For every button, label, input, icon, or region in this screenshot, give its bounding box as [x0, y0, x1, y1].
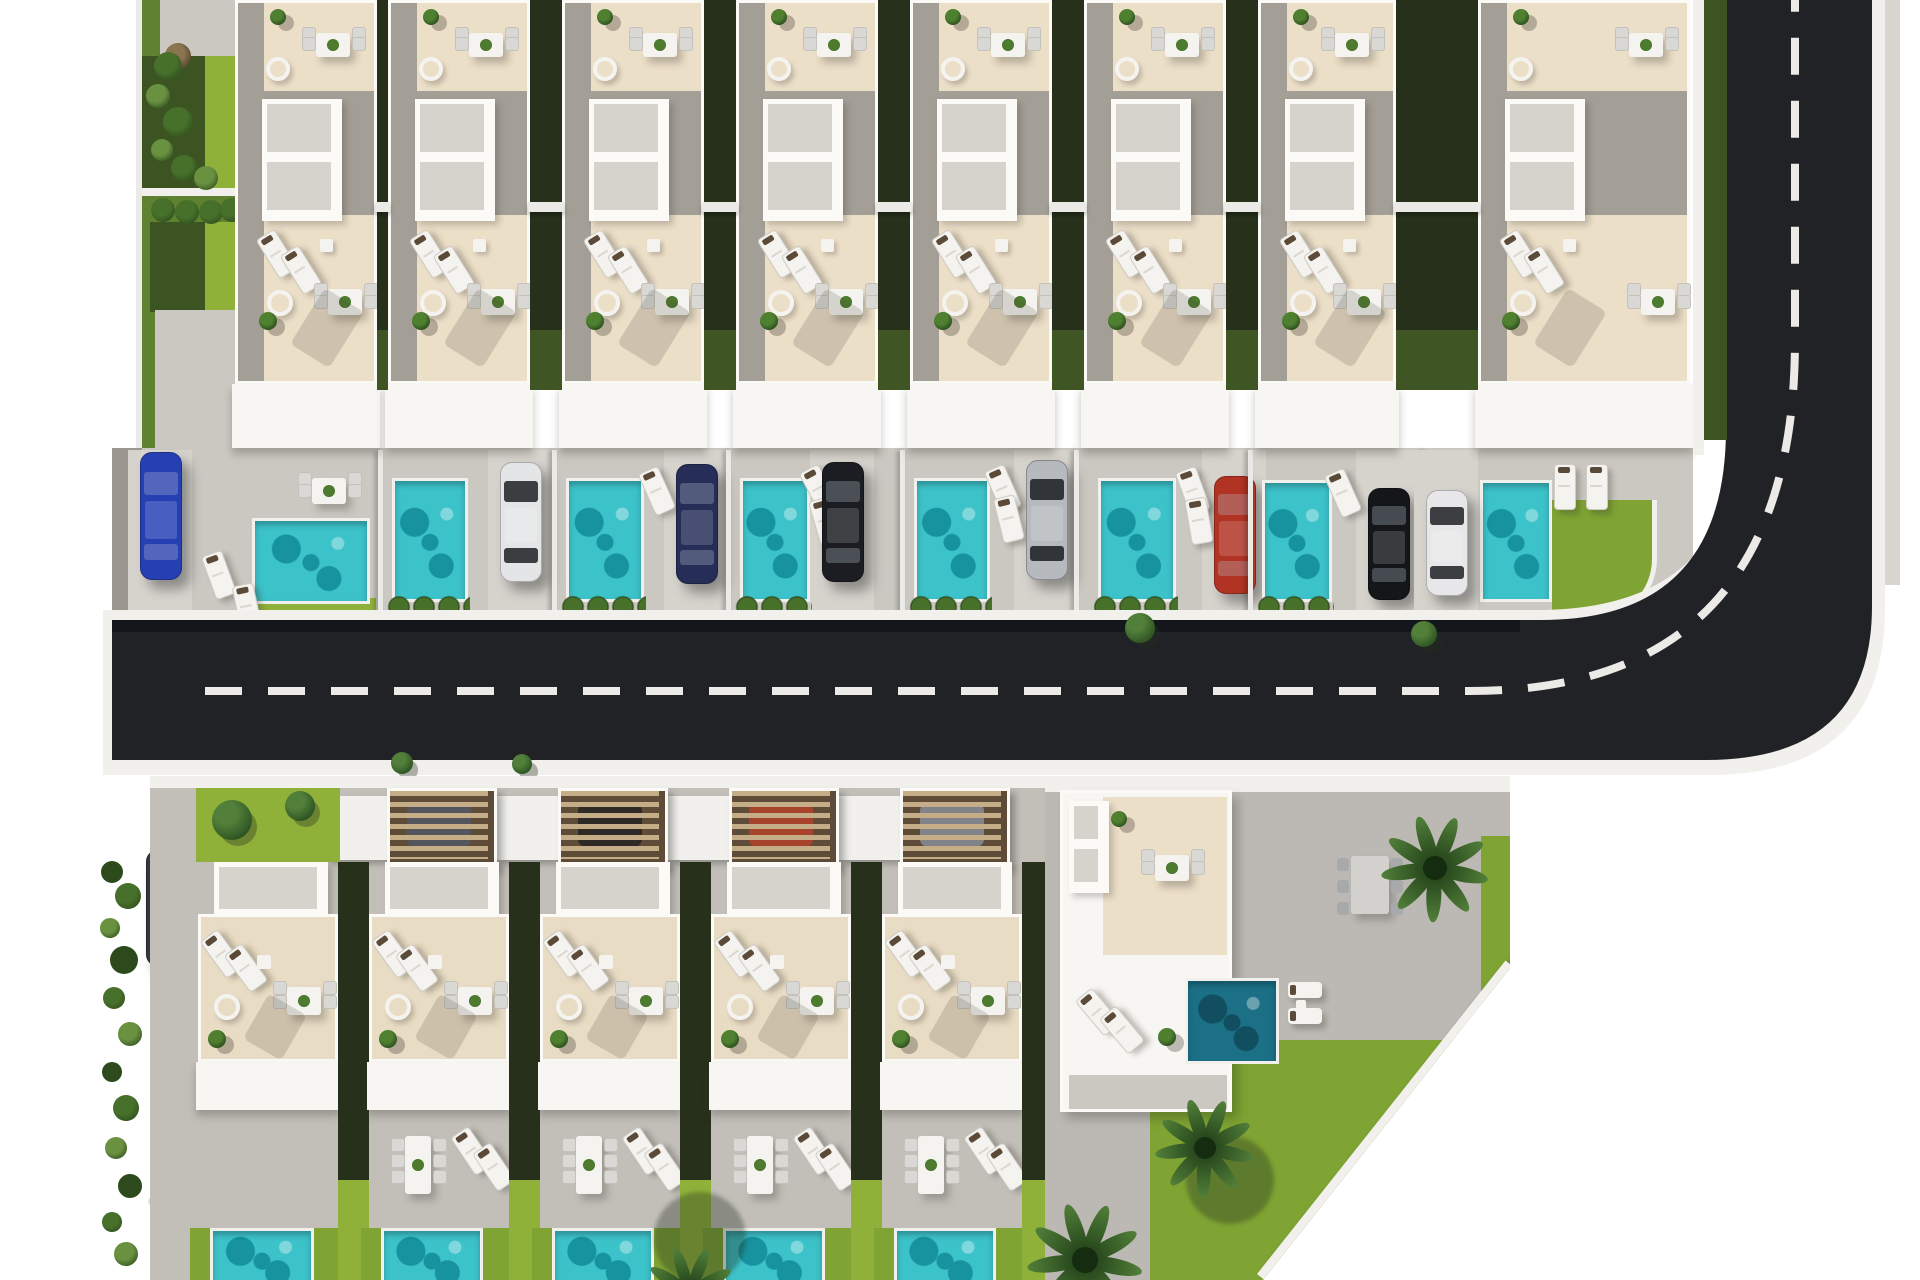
lounger-line — [829, 1162, 840, 1170]
lounger-headrest — [959, 250, 972, 261]
dining-set — [1151, 19, 1213, 71]
lot-gap-hedge — [680, 862, 711, 1180]
dining-chair — [1627, 295, 1641, 309]
table-plant-icon — [1166, 862, 1178, 874]
dining-set — [977, 19, 1039, 71]
villa-facade — [880, 1062, 1024, 1110]
dining-chair — [444, 981, 458, 995]
lounger-line — [795, 265, 806, 273]
table-plant-icon — [925, 1159, 937, 1171]
dining-set — [1141, 841, 1203, 895]
lounger-line — [212, 571, 224, 577]
skylight-panel — [768, 162, 832, 210]
dining-chair — [904, 1170, 918, 1184]
potted-plant-icon — [1158, 1028, 1176, 1046]
carport-pergola — [900, 788, 1010, 868]
lounger-line — [752, 963, 763, 972]
lounger-headrest — [1080, 993, 1093, 1005]
lounger-headrest — [455, 1132, 468, 1144]
dining-chair — [323, 995, 337, 1009]
table-plant-icon — [412, 1159, 424, 1171]
villa-facade — [733, 384, 881, 448]
lounger-line — [771, 249, 782, 257]
round-chair — [941, 57, 965, 81]
dining-table — [1155, 855, 1189, 881]
table-plant-icon — [982, 995, 994, 1007]
garden-block — [142, 188, 235, 196]
lounger-line — [969, 265, 980, 273]
dining-set — [629, 19, 691, 71]
lounger-headrest — [437, 250, 450, 261]
dining-chair — [1677, 295, 1691, 309]
round-chair — [1115, 57, 1139, 81]
lounger-line — [621, 265, 632, 273]
outdoor-chair — [1337, 858, 1349, 871]
skylight-panel — [942, 162, 1006, 210]
lounger-headrest — [626, 1132, 639, 1144]
side-table — [1169, 239, 1182, 252]
skylight-panel — [219, 867, 317, 909]
potted-plant-icon — [1502, 312, 1520, 330]
skylight-panel — [420, 162, 484, 210]
skylight-frame — [1505, 99, 1585, 221]
dining-chair — [562, 1170, 576, 1184]
dining-table — [1165, 33, 1199, 57]
bush-icon — [163, 107, 193, 137]
dining-chair — [733, 1138, 747, 1152]
round-chair — [266, 57, 290, 81]
pergola-slats — [561, 791, 659, 859]
connector-beam — [1224, 202, 1260, 212]
pool — [1185, 978, 1279, 1064]
top-villa-roof — [1258, 0, 1396, 384]
entry-block — [668, 796, 738, 860]
hedge-row — [908, 594, 992, 620]
dining-chair — [615, 981, 629, 995]
lounger-line — [240, 604, 252, 608]
side-table — [599, 955, 613, 969]
villa-facade — [196, 1062, 340, 1110]
dining-chair — [665, 995, 679, 1009]
villa-gap-hedge — [878, 0, 910, 390]
bottom-sidewalk — [150, 776, 1050, 788]
lounger-line — [996, 485, 1008, 492]
dining-chair — [1615, 37, 1629, 51]
top-villa-roof — [235, 0, 377, 384]
skylight-panel — [561, 867, 659, 909]
lounger-headrest — [642, 471, 655, 481]
side-table — [257, 955, 271, 969]
lounger-headrest — [1590, 467, 1602, 473]
lounger-headrest — [988, 469, 1001, 479]
dining-chair — [946, 1138, 960, 1152]
bush-icon — [114, 1242, 138, 1266]
outdoor-table — [1351, 856, 1389, 914]
dining-chair — [1151, 37, 1165, 51]
lounger-headrest — [1328, 473, 1341, 483]
lounger-line — [1590, 485, 1602, 487]
dining-chair — [1371, 37, 1385, 51]
car-windshield — [1218, 494, 1252, 515]
potted-plant-icon — [892, 1030, 910, 1048]
dining-chair — [1383, 295, 1397, 309]
gap-lawn-accent — [704, 330, 736, 390]
dining-set — [455, 19, 517, 71]
yard-divider-wall — [1248, 450, 1253, 618]
potted-plant-icon — [945, 9, 961, 25]
skylight-frame — [214, 862, 328, 920]
tree-icon — [1411, 621, 1437, 647]
car-rear-window — [1030, 546, 1064, 561]
car-roof — [1219, 521, 1251, 556]
dining-table — [469, 33, 503, 57]
yard-divider-wall — [552, 450, 557, 618]
sun-lounger — [1288, 982, 1322, 998]
top-villa-roof — [910, 0, 1052, 384]
gap-lawn-accent — [530, 330, 562, 390]
side-table — [428, 955, 442, 969]
skylight-panel — [1290, 162, 1354, 210]
table-plant-icon — [298, 995, 310, 1007]
dining-chair — [836, 995, 850, 1009]
lounger-headrest — [1307, 250, 1320, 261]
table-plant-icon — [1002, 39, 1014, 51]
corner-villa-parcel — [1045, 776, 1510, 1280]
lot-gap-hedge — [851, 862, 882, 1180]
car-windshield — [1030, 479, 1064, 500]
lounger-headrest — [1503, 234, 1516, 245]
skylight-panel — [903, 867, 1001, 909]
side-table — [473, 239, 486, 252]
table-plant-icon — [583, 1159, 595, 1171]
dining-table — [991, 33, 1025, 57]
villa-facade — [538, 1062, 682, 1110]
lounger-headrest — [1133, 250, 1146, 261]
lounger-headrest — [587, 234, 600, 245]
pool — [914, 478, 990, 602]
dining-chair — [302, 37, 316, 51]
dining-set — [298, 464, 360, 518]
car-rear-window — [680, 550, 714, 565]
dining-chair — [433, 1170, 447, 1184]
top-villa-roof — [562, 0, 704, 384]
hedge-row — [1256, 594, 1334, 620]
connector-beam — [876, 202, 912, 212]
dining-chair — [733, 1154, 747, 1168]
lounger-line — [1192, 518, 1204, 522]
lounger-line — [447, 265, 458, 273]
dining-chair — [494, 995, 508, 1009]
tree-icon — [285, 791, 315, 821]
lounger-headrest — [206, 554, 219, 564]
lounger-line — [1293, 249, 1304, 257]
villa-facade — [385, 384, 533, 448]
gap-lawn-accent — [377, 330, 388, 390]
pool — [1098, 478, 1176, 602]
bush-icon — [101, 861, 123, 883]
carport-pergola — [387, 788, 497, 868]
lounger-line — [423, 249, 434, 257]
lounger-headrest — [400, 949, 413, 961]
lounger-headrest — [571, 949, 584, 961]
top-villa-roof — [1084, 0, 1226, 384]
skylight-panel — [1510, 162, 1574, 210]
side-table — [770, 955, 784, 969]
side-table — [1343, 239, 1356, 252]
dining-set — [562, 1122, 616, 1208]
car-262e58 — [676, 464, 718, 584]
lounger-headrest — [1527, 250, 1540, 261]
top-villa-roof — [736, 0, 878, 384]
cast-shadow — [1533, 288, 1607, 368]
lounger-headrest — [1109, 234, 1122, 245]
lounger-line — [1115, 1025, 1125, 1034]
gap-lawn-accent — [878, 330, 910, 390]
potted-plant-icon — [270, 9, 286, 25]
car-rear-window — [1430, 566, 1464, 580]
bottom-villa-roof — [540, 914, 680, 1062]
bush-icon — [151, 198, 175, 222]
lot-gap-hedge — [1022, 862, 1045, 1180]
skylight-frame — [898, 862, 1012, 920]
car-windshield — [144, 472, 178, 495]
bottom-villa-roof — [882, 914, 1022, 1062]
side-table — [821, 239, 834, 252]
lounger-line — [1091, 1007, 1101, 1016]
sun-lounger — [1288, 1008, 1322, 1024]
dining-table — [576, 1136, 602, 1194]
pergola-slats — [390, 791, 488, 859]
dining-chair — [1321, 37, 1335, 51]
lounger-headrest — [260, 234, 273, 245]
bush-icon — [102, 1212, 122, 1232]
dining-chair — [853, 37, 867, 51]
lounger-line — [294, 265, 305, 273]
skylight-panel — [732, 867, 830, 909]
potted-plant-icon — [1513, 9, 1529, 25]
dining-chair — [946, 1170, 960, 1184]
lot-gap-hedge — [338, 862, 369, 1180]
dining-chair — [348, 484, 362, 498]
dining-table — [1335, 33, 1369, 57]
lounger-headrest — [990, 1148, 1003, 1160]
dining-chair — [562, 1138, 576, 1152]
entry-block — [497, 796, 567, 860]
dining-chair — [1665, 37, 1679, 51]
villa-facade — [709, 1062, 853, 1110]
lounger-headrest — [935, 234, 948, 245]
bush-icon — [146, 84, 170, 108]
lounger-line — [1186, 487, 1198, 493]
bush-icon — [194, 166, 218, 190]
lounger-headrest — [718, 935, 731, 947]
potted-plant-icon — [423, 9, 439, 25]
lounger-line — [270, 249, 281, 257]
potted-plant-icon — [586, 312, 604, 330]
dining-chair — [629, 37, 643, 51]
dining-chair — [775, 1170, 789, 1184]
dining-chair — [364, 295, 378, 309]
round-chair — [593, 57, 617, 81]
skylight-panel — [420, 104, 484, 152]
road-white-wall — [1693, 0, 1704, 455]
dining-chair — [455, 37, 469, 51]
bush-icon — [154, 52, 182, 80]
skylight-frame — [262, 99, 342, 221]
hedge-row — [386, 594, 470, 620]
table-plant-icon — [1652, 296, 1664, 308]
dining-table — [817, 33, 851, 57]
connector-beam — [528, 202, 564, 212]
dining-chair — [1007, 995, 1021, 1009]
round-chair — [1509, 57, 1533, 81]
car-e7e7e9 — [1426, 490, 1468, 596]
dining-table — [1629, 33, 1663, 57]
lounger-line — [410, 963, 421, 972]
garden-block — [150, 222, 208, 312]
yard-divider-wall — [378, 450, 383, 618]
potted-plant-icon — [934, 312, 952, 330]
connector-beam — [702, 202, 738, 212]
table-plant-icon — [1346, 39, 1358, 51]
skylight-frame — [415, 99, 495, 221]
outdoor-dining-set — [1337, 842, 1403, 928]
lounger-line — [1513, 249, 1524, 257]
tree-icon — [1125, 613, 1155, 643]
villa-gap-hedge — [1396, 0, 1478, 390]
skylight-frame — [1111, 99, 1191, 221]
connector-beam — [1050, 202, 1086, 212]
car-roof — [145, 501, 177, 539]
dining-set — [1321, 19, 1383, 71]
bush-icon — [151, 139, 173, 161]
skylight-panel — [1074, 849, 1098, 882]
table-plant-icon — [640, 995, 652, 1007]
table-plant-icon — [828, 39, 840, 51]
dining-chair — [679, 37, 693, 51]
bush-icon — [113, 1095, 139, 1121]
lounger-headrest — [742, 949, 755, 961]
car-windshield — [826, 481, 860, 502]
lounger-line — [1002, 516, 1014, 521]
potted-plant-icon — [597, 9, 613, 25]
pool — [392, 478, 468, 602]
lounger-headrest — [611, 250, 624, 261]
round-chair — [385, 994, 411, 1020]
lounger-headrest — [376, 935, 389, 947]
dining-chair — [1201, 37, 1215, 51]
potted-plant-icon — [771, 9, 787, 25]
bottom-villa-roof — [198, 914, 338, 1062]
outdoor-chair — [1337, 902, 1349, 915]
villa-gap-hedge — [704, 0, 736, 390]
side-table — [995, 239, 1008, 252]
tree-icon — [391, 752, 413, 774]
dining-chair — [786, 981, 800, 995]
dining-chair — [977, 37, 991, 51]
lounger-line — [1336, 489, 1348, 496]
bush-icon — [100, 918, 120, 938]
lounger-headrest — [205, 935, 218, 947]
table-plant-icon — [1640, 39, 1652, 51]
lounger-line — [1143, 265, 1154, 273]
dining-table — [918, 1136, 944, 1194]
carport-pergola — [558, 788, 668, 868]
lounger-headrest — [803, 469, 816, 480]
lounger-headrest — [547, 935, 560, 947]
dining-chair — [391, 1170, 405, 1184]
dining-chair — [904, 1138, 918, 1152]
car-roof — [1373, 531, 1405, 564]
car-15161a — [1368, 488, 1410, 600]
dining-chair — [604, 1138, 618, 1152]
table-plant-icon — [1176, 39, 1188, 51]
table-plant-icon — [323, 485, 335, 497]
lounger-line — [650, 487, 662, 494]
lot-gap-hedge — [509, 862, 540, 1180]
villa-facade — [559, 384, 707, 448]
bush-icon — [118, 1022, 142, 1046]
potted-plant-icon — [721, 1030, 739, 1048]
outdoor-chair — [1337, 880, 1349, 893]
skylight-panel — [1510, 104, 1574, 152]
top-villa-roof — [1478, 0, 1690, 384]
villa-gap-hedge — [1226, 0, 1258, 390]
lounger-headrest — [761, 234, 774, 245]
lounger-line — [597, 249, 608, 257]
pool — [740, 478, 810, 602]
dining-chair — [775, 1154, 789, 1168]
potted-plant-icon — [379, 1030, 397, 1048]
side-table — [320, 239, 333, 252]
dining-chair — [665, 981, 679, 995]
side-table — [941, 955, 955, 969]
dining-chair — [562, 1154, 576, 1168]
lounger-line — [945, 249, 956, 257]
round-chair — [1289, 57, 1313, 81]
lounger-line — [1317, 265, 1328, 273]
garden-block — [155, 310, 235, 448]
dining-chair — [604, 1170, 618, 1184]
car-windshield — [1372, 506, 1406, 526]
table-plant-icon — [811, 995, 823, 1007]
dining-set — [302, 19, 364, 71]
potted-plant-icon — [412, 312, 430, 330]
lounger-headrest — [1290, 985, 1296, 995]
pergola-slats — [903, 791, 1001, 859]
dining-chair — [803, 37, 817, 51]
side-table — [1563, 239, 1576, 252]
yard-divider-wall — [900, 450, 905, 618]
skylight-panel — [267, 104, 331, 152]
pool — [894, 1228, 996, 1280]
skylight-panel — [942, 104, 1006, 152]
pool — [1262, 480, 1332, 602]
pergola-slats — [732, 791, 830, 859]
dining-chair — [433, 1138, 447, 1152]
bottom-villa-roof — [711, 914, 851, 1062]
dining-table — [1641, 289, 1675, 315]
dining-chair — [391, 1154, 405, 1168]
car-b6b9bd — [1026, 460, 1068, 580]
pool — [566, 478, 644, 602]
round-chair — [214, 994, 240, 1020]
carport-pergola — [729, 788, 839, 868]
lounger-headrest — [1283, 234, 1296, 245]
lounger-line — [1000, 1162, 1011, 1170]
dining-chair — [775, 1138, 789, 1152]
dining-chair — [1039, 295, 1053, 309]
